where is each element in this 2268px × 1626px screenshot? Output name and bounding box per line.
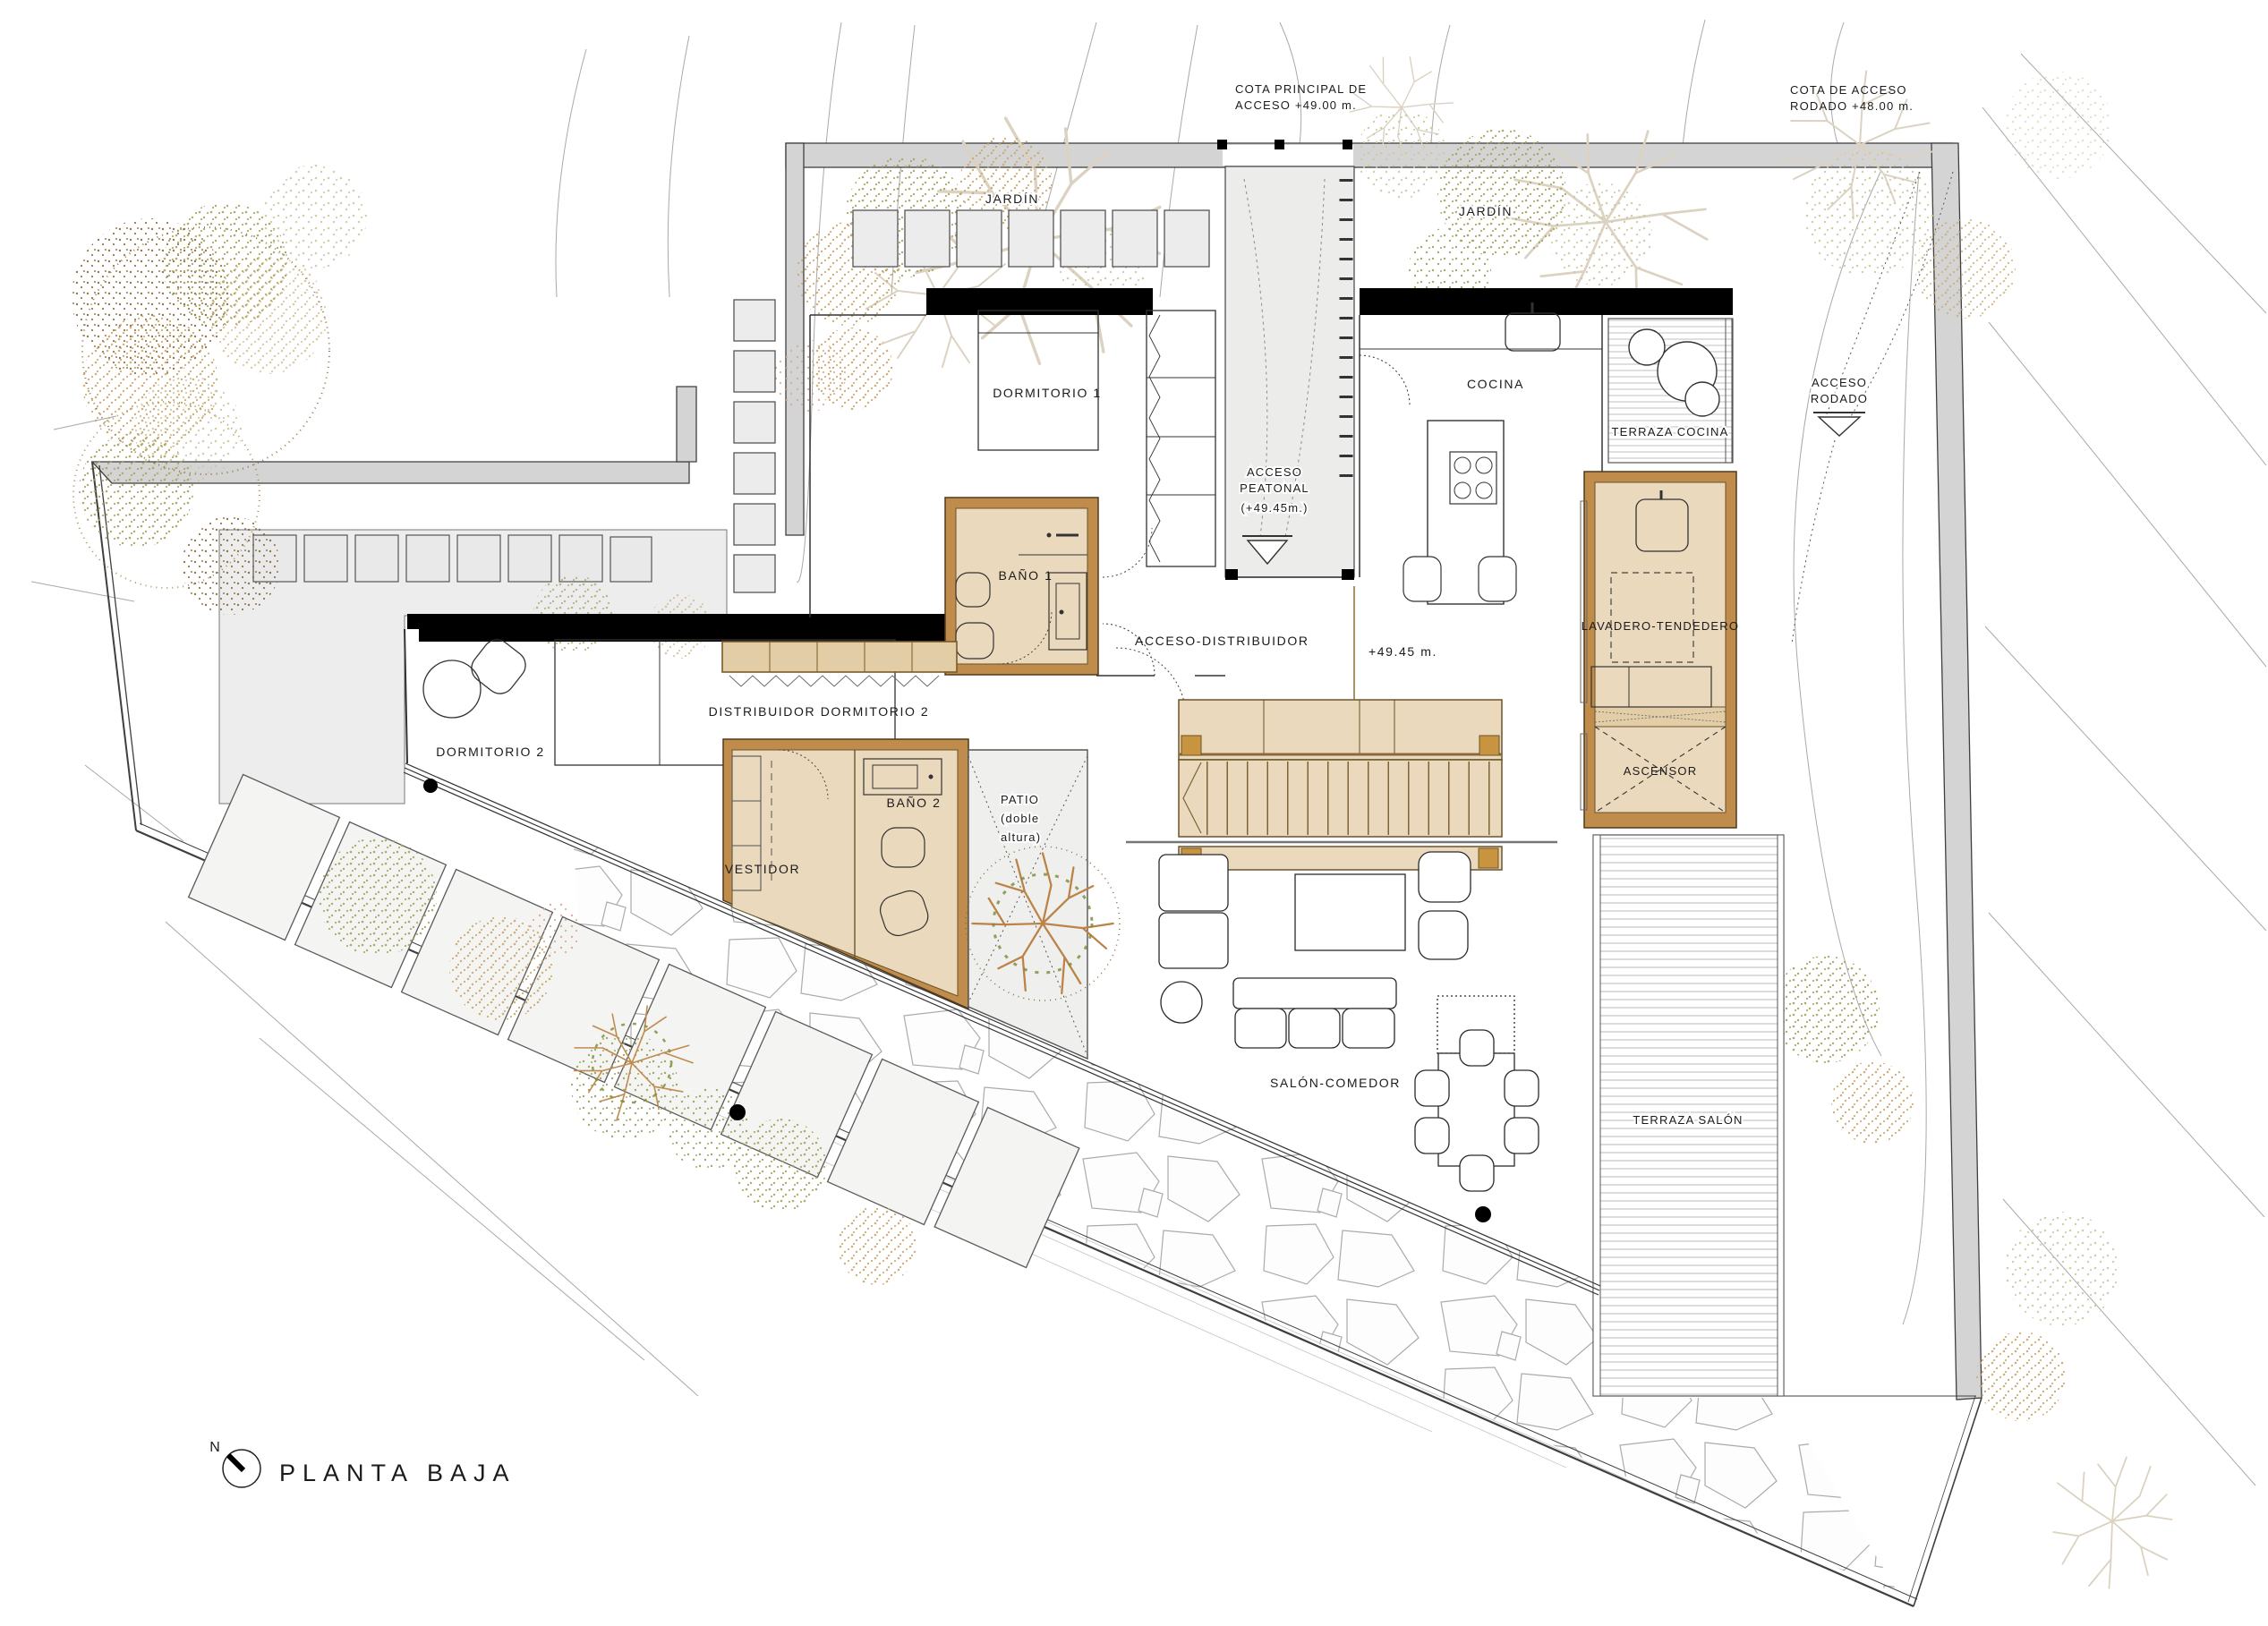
bano2-label: BAÑO 2 [887, 796, 942, 810]
jardin-left-label: JARDÍN [985, 192, 1039, 206]
hanger-zigzag [1149, 315, 1160, 562]
acceso-rodado-label2: RODADO [1811, 392, 1868, 405]
cocina-label: COCINA [1467, 377, 1524, 391]
acceso-peatonal-cota: (+49.45m.) [1241, 501, 1308, 515]
side-table [1161, 982, 1202, 1023]
sofa-module [1159, 855, 1228, 911]
wardrobe-dorm1 [1147, 311, 1215, 566]
chair [466, 634, 532, 700]
distribuidor-dorm2-label: DISTRIBUIDOR DORMITORIO 2 [709, 704, 930, 719]
patio-label3: altura) [1001, 830, 1041, 844]
terraza-cocina-label: TERRAZA COCINA [1612, 425, 1729, 438]
coffee-table [1295, 874, 1405, 950]
dining-set [1415, 996, 1539, 1191]
pouf [1419, 852, 1471, 902]
dining-chair [1505, 1118, 1539, 1154]
vegetation [72, 43, 2196, 1609]
plant-pot [1685, 382, 1719, 416]
sofa-seat [1289, 1009, 1340, 1048]
floor-plan-page: COTA PRINCIPAL DE ACCESO +49.00 m. COTA … [0, 0, 2268, 1626]
acceso-peatonal-corridor [1225, 166, 1354, 580]
dormitorio2-label: DORMITORIO 2 [436, 745, 545, 759]
floor-plan-canvas: COTA PRINCIPAL DE ACCESO +49.00 m. COTA … [0, 0, 2268, 1626]
acceso-peatonal-label2: PEATONAL [1240, 481, 1309, 495]
ascensor-label: ASCENSOR [1624, 764, 1698, 778]
dining-chair [1415, 1118, 1449, 1154]
vestidor-label: VESTIDOR [725, 862, 800, 876]
sofa-back [1233, 978, 1396, 1009]
plan-title: PLANTA BAJA [279, 1460, 516, 1486]
terraza-salon-label: TERRAZA SALÓN [1633, 1113, 1743, 1127]
sofa-seat [1235, 1009, 1286, 1048]
plant-pot [1629, 329, 1665, 365]
north-arrow: N [209, 1440, 260, 1487]
acceso-rodado-label1: ACCESO [1812, 376, 1867, 389]
cota-rodado-label: COTA DE ACCESO [1790, 83, 1907, 97]
stool [1479, 557, 1516, 601]
patio-label2: (doble [1001, 812, 1039, 825]
bano1-label: BAÑO 1 [999, 568, 1053, 583]
north-label: N [209, 1440, 220, 1455]
acceso-peatonal-label1: ACCESO [1247, 465, 1302, 479]
dining-table [1438, 1053, 1514, 1166]
acceso-distribuidor-label: ACCESO-DISTRIBUIDOR [1135, 634, 1309, 648]
sofa-seat [1343, 1009, 1394, 1048]
cota-principal-label: COTA PRINCIPAL DE [1235, 82, 1367, 96]
patio-label1: PATIO [1001, 793, 1039, 806]
stool [1403, 557, 1441, 601]
cota-principal-value: ACCESO +49.00 m. [1235, 98, 1357, 112]
dormitorio1-label: DORMITORIO 1 [993, 386, 1102, 400]
dining-chair [1460, 1030, 1494, 1066]
jardin-right-label: JARDÍN [1459, 204, 1513, 218]
left-garden-court [219, 530, 727, 804]
dining-chair [1415, 1070, 1449, 1106]
stairs [1126, 586, 1557, 870]
bidet [956, 623, 993, 659]
corridor-wardrobe [722, 642, 957, 672]
cota-rodado-value: RODADO +48.00 m. [1790, 99, 1914, 113]
dining-chair [1505, 1070, 1539, 1106]
pouf [1419, 911, 1468, 959]
cota-4945-label: +49.45 m. [1368, 644, 1437, 659]
salon-comedor-label: SALÓN-COMEDOR [1270, 1076, 1401, 1090]
kitchen-sink [1505, 313, 1560, 351]
sofa-module [1159, 913, 1228, 968]
dining-chair [1460, 1155, 1494, 1191]
lavadero-label: LAVADERO-TENDEDERO [1582, 619, 1739, 633]
terraza-cocina [1608, 319, 1733, 463]
toilet [956, 573, 990, 607]
lavadero-room [1595, 482, 1726, 707]
cocina-room [1360, 302, 1602, 604]
rodado-direction-arrow-icon [1819, 417, 1860, 436]
bed-dorm1 [978, 311, 1098, 450]
